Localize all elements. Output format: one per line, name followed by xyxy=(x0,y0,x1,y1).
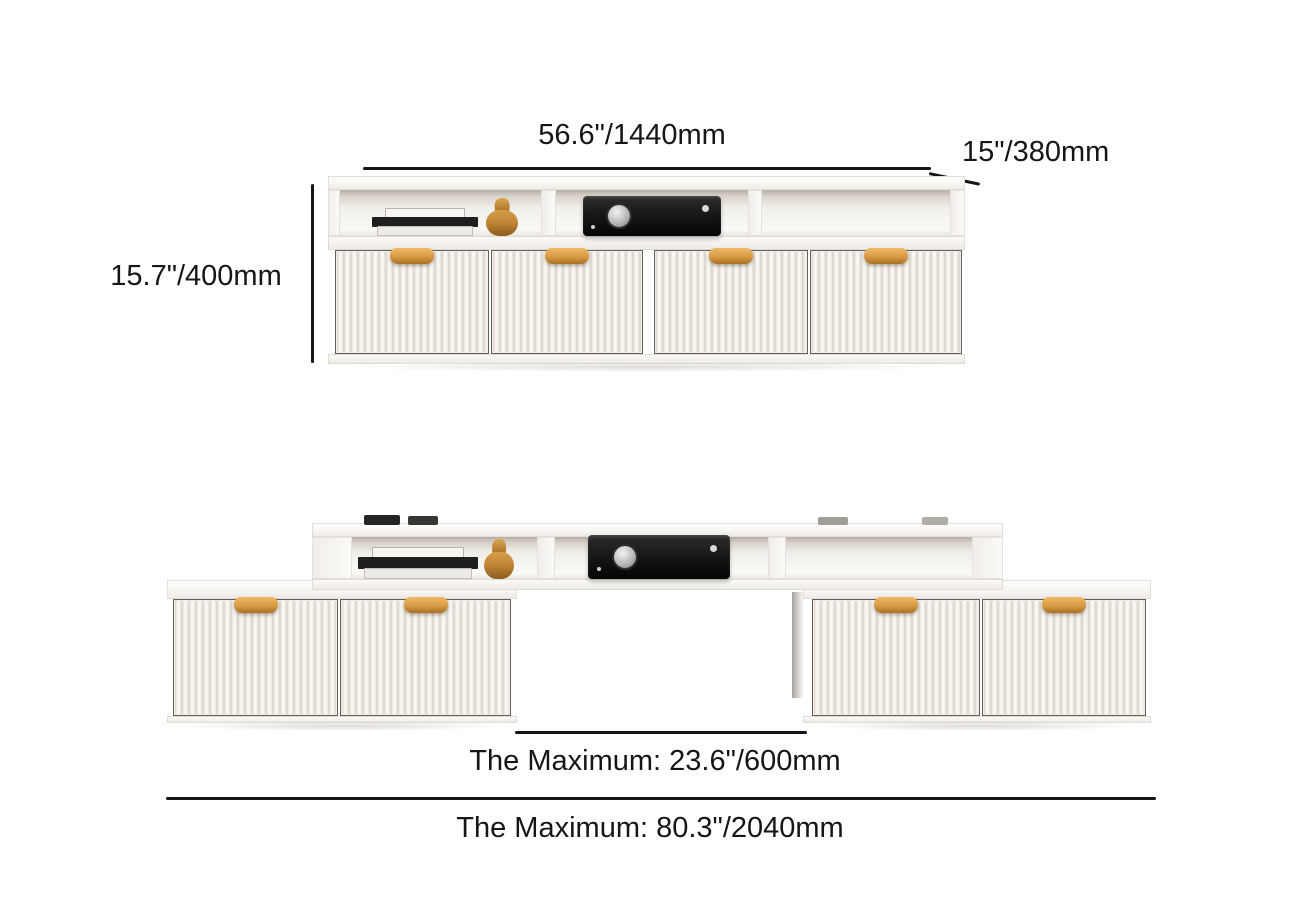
media-player-knob xyxy=(606,203,632,229)
gold-handle xyxy=(874,597,918,613)
shelf-divider xyxy=(748,190,762,236)
door-row xyxy=(803,599,1151,716)
decor-vase xyxy=(484,539,514,579)
gold-handle xyxy=(404,597,448,613)
remote-control xyxy=(408,516,438,525)
height-dimension-label: 15.7"/400mm xyxy=(90,260,302,293)
media-player xyxy=(583,196,721,236)
open-shelf-right xyxy=(786,537,972,579)
gold-handle xyxy=(545,248,589,264)
cast-shadow xyxy=(174,721,510,731)
side-panel-left xyxy=(328,190,340,236)
fluted-door xyxy=(982,599,1146,716)
side-panel-right xyxy=(950,190,965,236)
gold-handle xyxy=(864,248,908,264)
vase-body xyxy=(486,210,518,236)
media-player-knob xyxy=(612,544,638,570)
flat-box xyxy=(818,517,848,525)
media-player-led xyxy=(702,205,709,212)
side-panel-left xyxy=(312,537,352,579)
gold-handle xyxy=(1042,597,1086,613)
media-player-led xyxy=(710,545,717,552)
book xyxy=(358,557,478,569)
shelf-bridge xyxy=(312,523,1003,590)
open-shelf-right xyxy=(762,190,950,236)
book xyxy=(364,568,472,579)
gold-handle xyxy=(390,248,434,264)
door-row xyxy=(328,250,965,354)
books-stack xyxy=(372,208,478,236)
vase-body xyxy=(484,552,514,579)
gold-handle xyxy=(234,597,278,613)
side-panel-right xyxy=(972,537,1003,579)
fluted-door xyxy=(340,599,511,716)
decor-vase xyxy=(486,198,518,236)
gold-handle xyxy=(709,248,753,264)
extended-cabinet-right xyxy=(803,580,1151,723)
width-dimension-label: 56.6"/1440mm xyxy=(412,119,852,152)
extended-cabinet-left xyxy=(167,580,517,723)
book xyxy=(372,217,478,227)
gap-dimension-line xyxy=(515,731,807,734)
fluted-door xyxy=(654,250,808,354)
tv-stand-collapsed xyxy=(328,176,965,364)
media-player-light xyxy=(597,567,601,571)
width-dimension-line xyxy=(363,167,931,170)
shelf-divider xyxy=(541,190,556,236)
total-width-dimension-label: The Maximum: 80.3"/2040mm xyxy=(400,812,900,845)
door-row xyxy=(167,599,517,716)
fluted-door xyxy=(812,599,980,716)
book xyxy=(377,226,472,236)
shelf-divider xyxy=(768,537,786,579)
fluted-door xyxy=(173,599,338,716)
depth-dimension-label: 15"/380mm xyxy=(962,136,1109,169)
media-player xyxy=(588,535,730,579)
cast-shadow xyxy=(792,592,804,698)
product-dimension-diagram: 56.6"/1440mm 15"/380mm 15.7"/400mm xyxy=(0,0,1300,910)
fluted-door xyxy=(335,250,489,354)
shelf-divider xyxy=(537,537,555,579)
top-panel xyxy=(328,176,965,190)
flat-box xyxy=(922,517,948,525)
height-dimension-line xyxy=(311,184,314,363)
total-width-dimension-line xyxy=(166,797,1156,800)
fluted-door xyxy=(491,250,643,354)
books-stack xyxy=(358,547,478,579)
shelf-bottom-panel xyxy=(312,579,1003,590)
media-player-light xyxy=(591,225,595,229)
cast-shadow xyxy=(810,721,1144,731)
gap-dimension-label: The Maximum: 23.6"/600mm xyxy=(405,745,905,778)
cast-shadow xyxy=(341,362,953,372)
remote-control xyxy=(364,515,400,525)
fluted-door xyxy=(810,250,962,354)
